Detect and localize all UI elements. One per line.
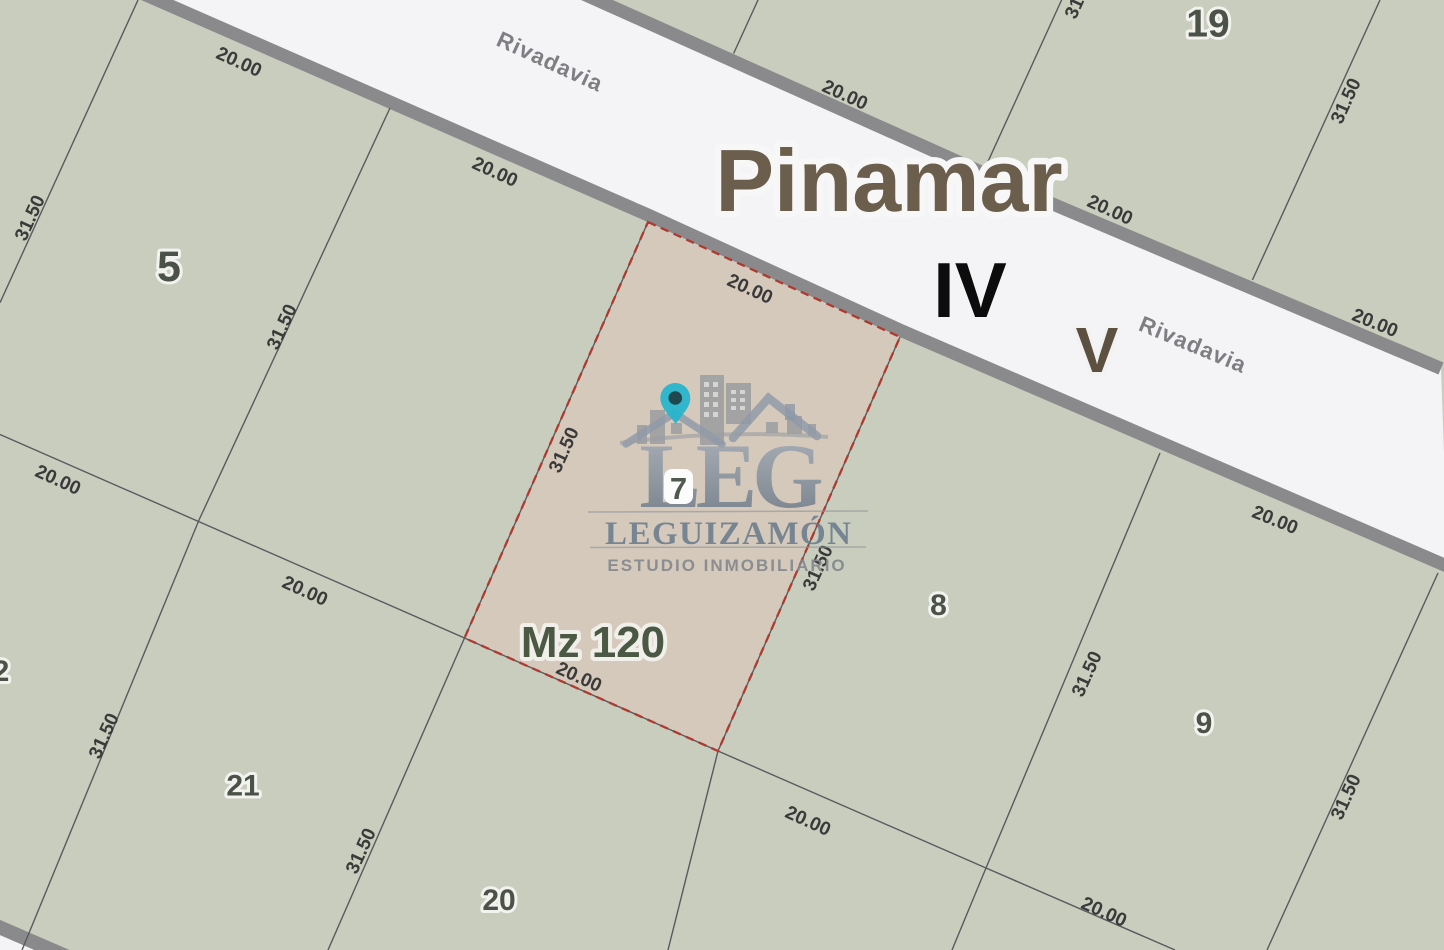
svg-text:Mz 120: Mz 120 (521, 618, 665, 667)
svg-text:5: 5 (157, 243, 181, 291)
svg-text:7: 7 (670, 471, 687, 506)
svg-text:LEGUIZAMÓN: LEGUIZAMÓN (605, 514, 851, 552)
svg-text:19: 19 (1186, 3, 1229, 46)
svg-text:2: 2 (0, 655, 9, 688)
svg-text:V: V (1076, 314, 1119, 386)
svg-text:20: 20 (482, 884, 515, 917)
svg-text:ESTUDIO INMOBILIARIO: ESTUDIO INMOBILIARIO (607, 556, 846, 575)
svg-text:21: 21 (226, 770, 259, 803)
svg-text:IV: IV (933, 246, 1007, 334)
svg-text:9: 9 (1196, 707, 1213, 740)
svg-text:8: 8 (930, 589, 947, 622)
svg-text:Pinamar: Pinamar (715, 131, 1062, 230)
